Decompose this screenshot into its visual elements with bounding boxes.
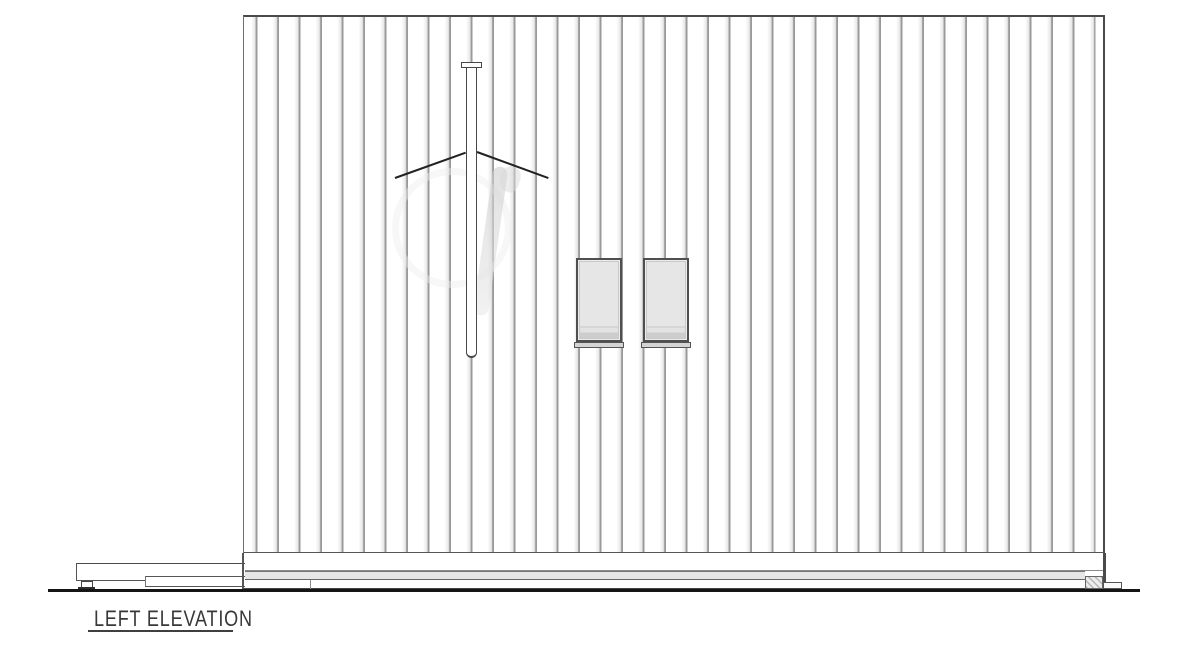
drawing-title: LEFT ELEVATION — [94, 606, 253, 632]
foundation-skirt-band — [243, 571, 1085, 580]
vent-pipe — [466, 67, 478, 358]
window-1-sill — [574, 342, 624, 348]
deck-step — [145, 576, 245, 587]
skirt-joint-tick — [310, 580, 311, 589]
window-2-pane — [646, 261, 686, 339]
drawing-title-underline — [88, 630, 233, 632]
window-2-sill — [641, 342, 691, 348]
corner-foundation-pad — [1085, 576, 1103, 589]
right-step-block — [1103, 582, 1122, 589]
vent-pipe-cap — [461, 62, 482, 68]
window-1 — [576, 258, 622, 342]
window-2 — [643, 258, 689, 342]
ground-line — [48, 589, 1140, 592]
elevation-drawing-canvas: LEFT ELEVATION — [0, 0, 1200, 647]
foundation-base-band — [243, 580, 1103, 589]
corner-trim-left — [242, 553, 244, 590]
foundation-rim-band — [243, 553, 1105, 571]
window-1-pane — [579, 261, 619, 339]
